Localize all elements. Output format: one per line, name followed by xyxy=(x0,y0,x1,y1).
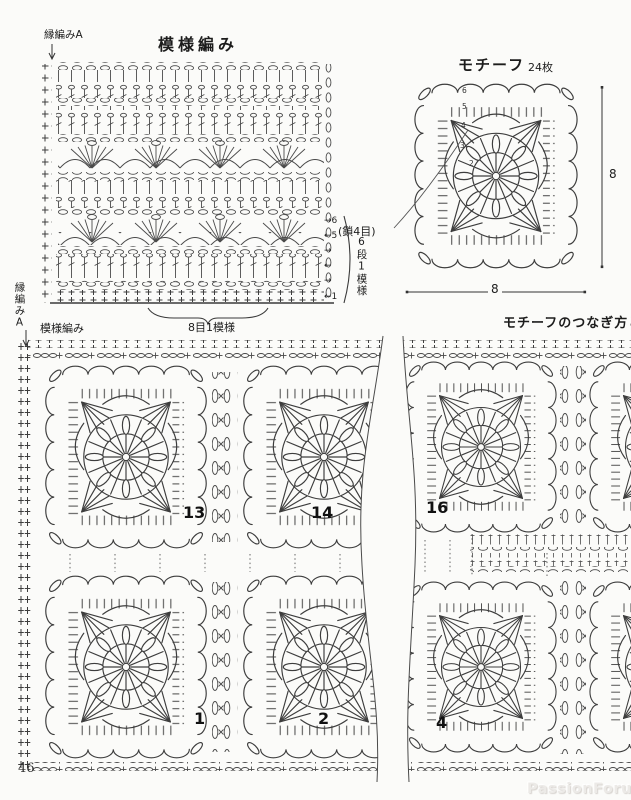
round-number-3: 3 xyxy=(460,142,465,150)
row-repeat-label: 6段1模様 xyxy=(356,236,367,297)
edge-a-label-top: 縁編みA xyxy=(44,30,83,41)
round-number-4: 4 xyxy=(461,122,466,130)
motif-count-label: 24枚 xyxy=(528,62,553,73)
assembly-title: モチーフのつなぎ方と xyxy=(503,317,631,330)
motif-number-4: 4 xyxy=(436,715,447,731)
round-number-6: 6 xyxy=(462,87,467,95)
stitch-chart-title: 模様編み xyxy=(158,37,238,53)
motif-number-2: 2 xyxy=(318,711,329,727)
motif-number-1: 1 xyxy=(194,711,205,727)
motif-number-14: 14 xyxy=(311,505,333,521)
motif-title: モチーフ xyxy=(458,58,525,73)
crochet-diagram-canvas xyxy=(0,0,631,800)
page-number: 46 xyxy=(18,762,35,775)
round-number-2: 2 xyxy=(469,160,474,168)
motif-width-dim: 8 xyxy=(488,283,502,295)
row-mark-1: ←1 xyxy=(324,293,350,302)
motif-height-dim: 8 xyxy=(606,168,620,180)
motif-chart-graphic xyxy=(394,84,603,293)
row-mark-6: →6 xyxy=(324,217,350,226)
stitch-chart-graphic xyxy=(23,44,350,346)
row-mark-5: ←5 xyxy=(324,232,350,241)
edge-a-label-bottom: 縁編みA xyxy=(14,282,25,330)
stitch-repeat-label: 8目1模様 xyxy=(188,322,235,333)
row-mark-4: → xyxy=(324,247,350,256)
watermark: PassionForum.ru xyxy=(527,782,631,797)
motif-number-13: 13 xyxy=(183,505,205,521)
row-mark-3: ← xyxy=(324,262,350,271)
row-mark-2: → xyxy=(324,277,350,286)
scanned-crochet-page: { "page": { "number": "46", "watermark":… xyxy=(0,0,631,800)
motif-number-16: 16 xyxy=(426,500,448,516)
stitch-chart-base-label: 模様編み xyxy=(40,323,84,334)
round-number-5: 5 xyxy=(462,103,467,111)
